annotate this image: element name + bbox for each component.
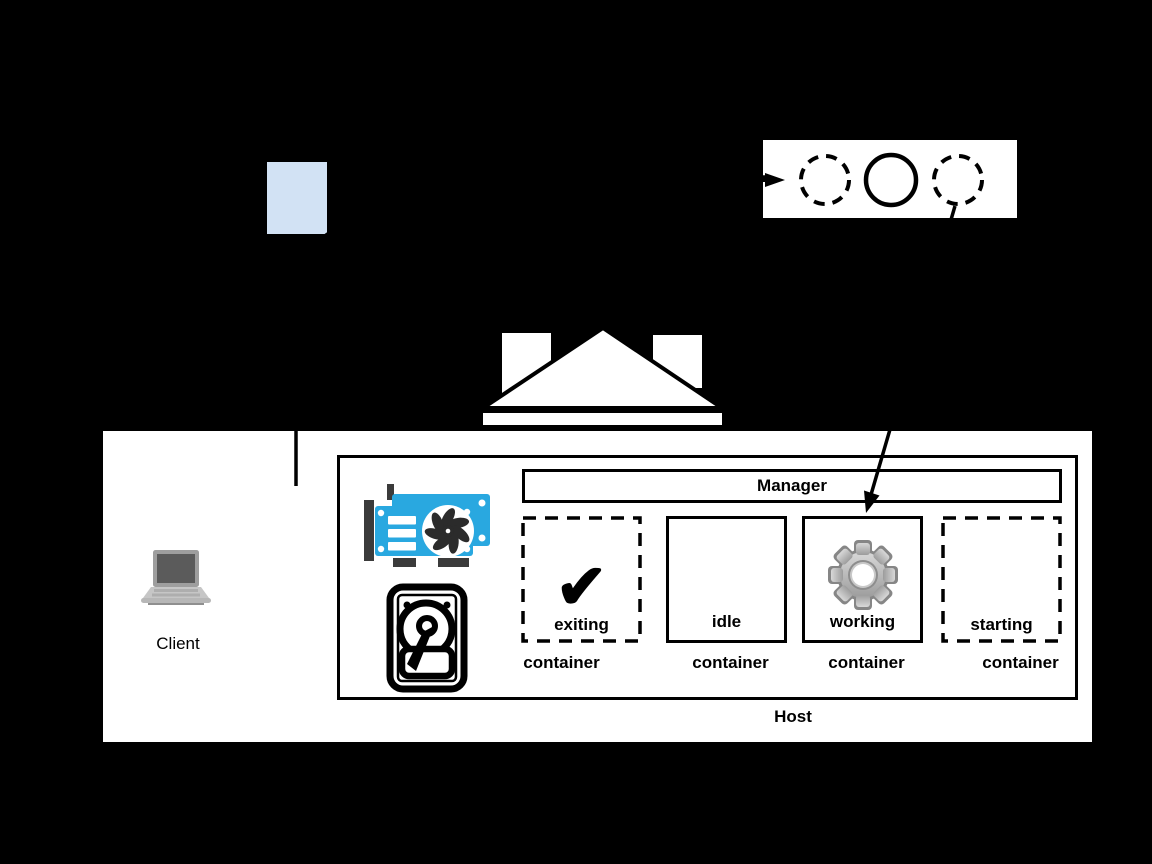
roof-base-bar xyxy=(483,413,722,425)
client-label: Client xyxy=(128,634,228,654)
container-exiting: ✔ exiting xyxy=(521,516,642,643)
solid-circle-icon xyxy=(866,155,916,205)
container-caption: container xyxy=(501,653,622,673)
container-caption: container xyxy=(960,653,1081,673)
manager-bar: Manager xyxy=(522,469,1062,503)
checkmark-icon: ✔ xyxy=(556,562,608,615)
container-starting: starting xyxy=(941,516,1062,643)
dashed-circle-icon xyxy=(934,156,982,204)
gateway-roof-shape xyxy=(480,325,725,427)
document-fold-corner xyxy=(313,227,331,244)
laptop-icon xyxy=(140,549,212,606)
gpu-card-icon xyxy=(363,483,497,571)
container-state-label: starting xyxy=(970,615,1032,635)
container-idle: idle xyxy=(666,516,787,643)
container-state-label: working xyxy=(830,612,895,632)
container-caption: container xyxy=(806,653,927,673)
lifecycle-circles xyxy=(763,140,1017,218)
document-icon xyxy=(267,162,327,234)
arrowhead-icon xyxy=(765,173,785,187)
gear-icon xyxy=(828,538,898,610)
host-label: Host xyxy=(743,707,843,727)
dashed-circle-icon xyxy=(801,156,849,204)
lifecycle-box xyxy=(763,140,1017,218)
container-working: working xyxy=(802,516,923,643)
container-state-label: idle xyxy=(712,612,741,632)
hard-drive-icon xyxy=(386,583,468,693)
diagram-canvas: Manager ✔ exiting idle xyxy=(0,0,1152,864)
container-state-label: exiting xyxy=(554,615,609,635)
manager-label: Manager xyxy=(757,476,827,496)
container-caption: container xyxy=(670,653,791,673)
